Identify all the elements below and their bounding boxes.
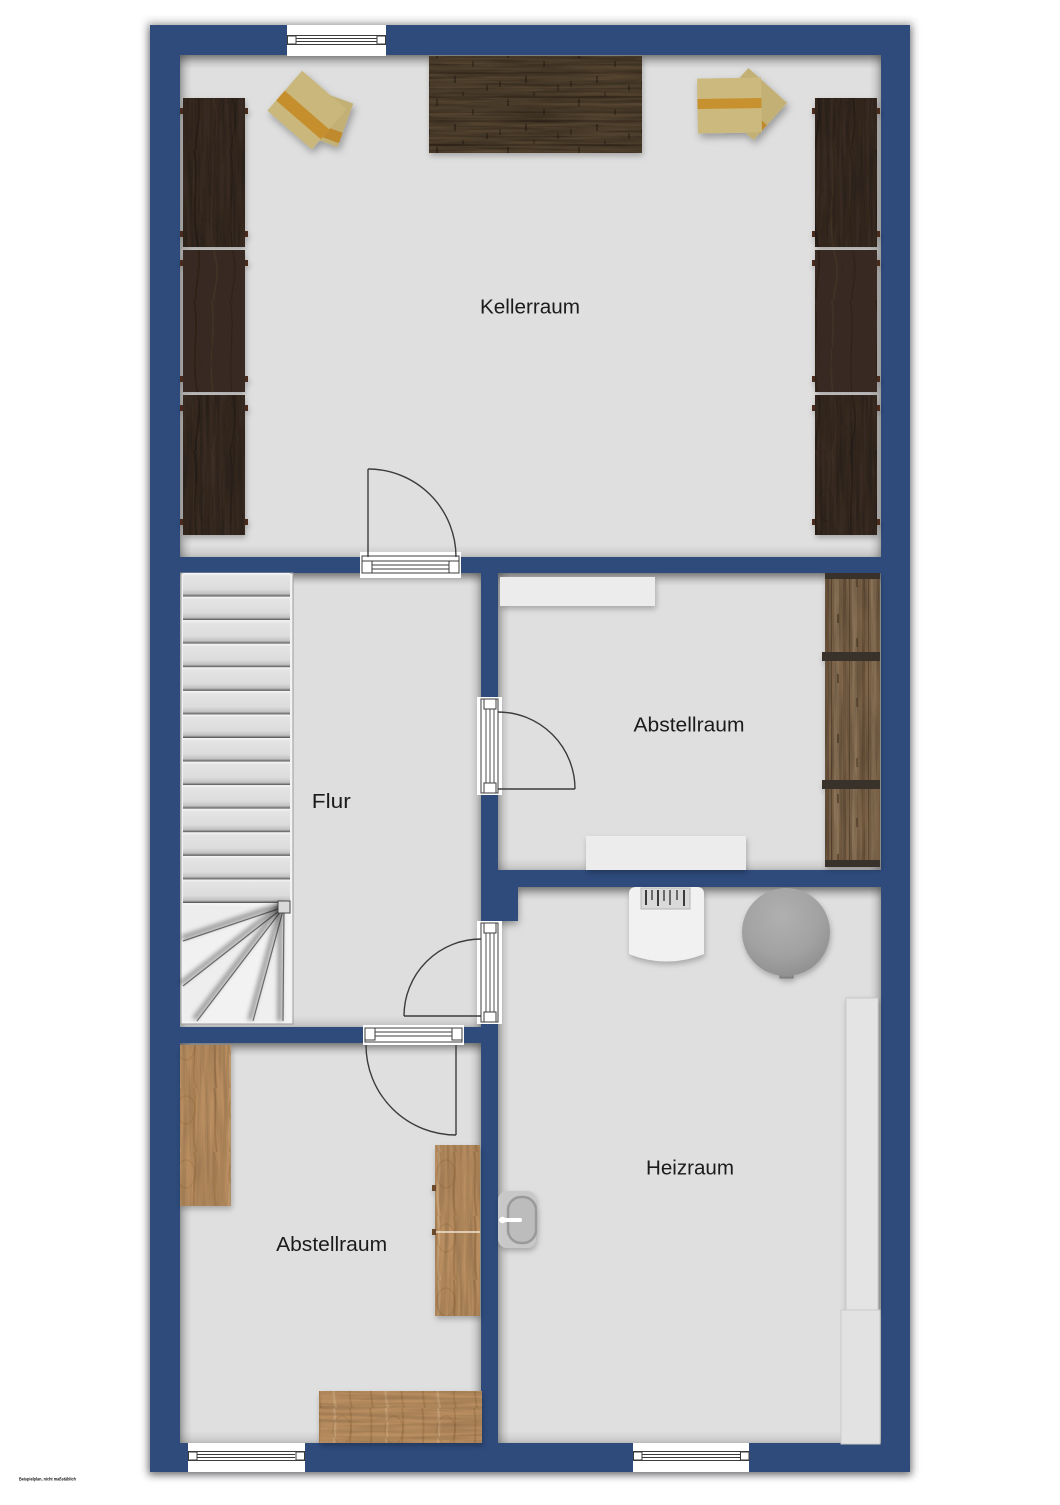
svg-text:Heizraum: Heizraum (646, 1158, 734, 1180)
svg-text:Beispielplan, nicht maßstäblic: Beispielplan, nicht maßstäblich (19, 1477, 76, 1482)
svg-text:Abstellraum: Abstellraum (276, 1234, 387, 1256)
svg-text:Flur: Flur (312, 791, 351, 813)
svg-text:Kellerraum: Kellerraum (480, 297, 580, 319)
svg-text:Abstellraum: Abstellraum (634, 715, 745, 737)
